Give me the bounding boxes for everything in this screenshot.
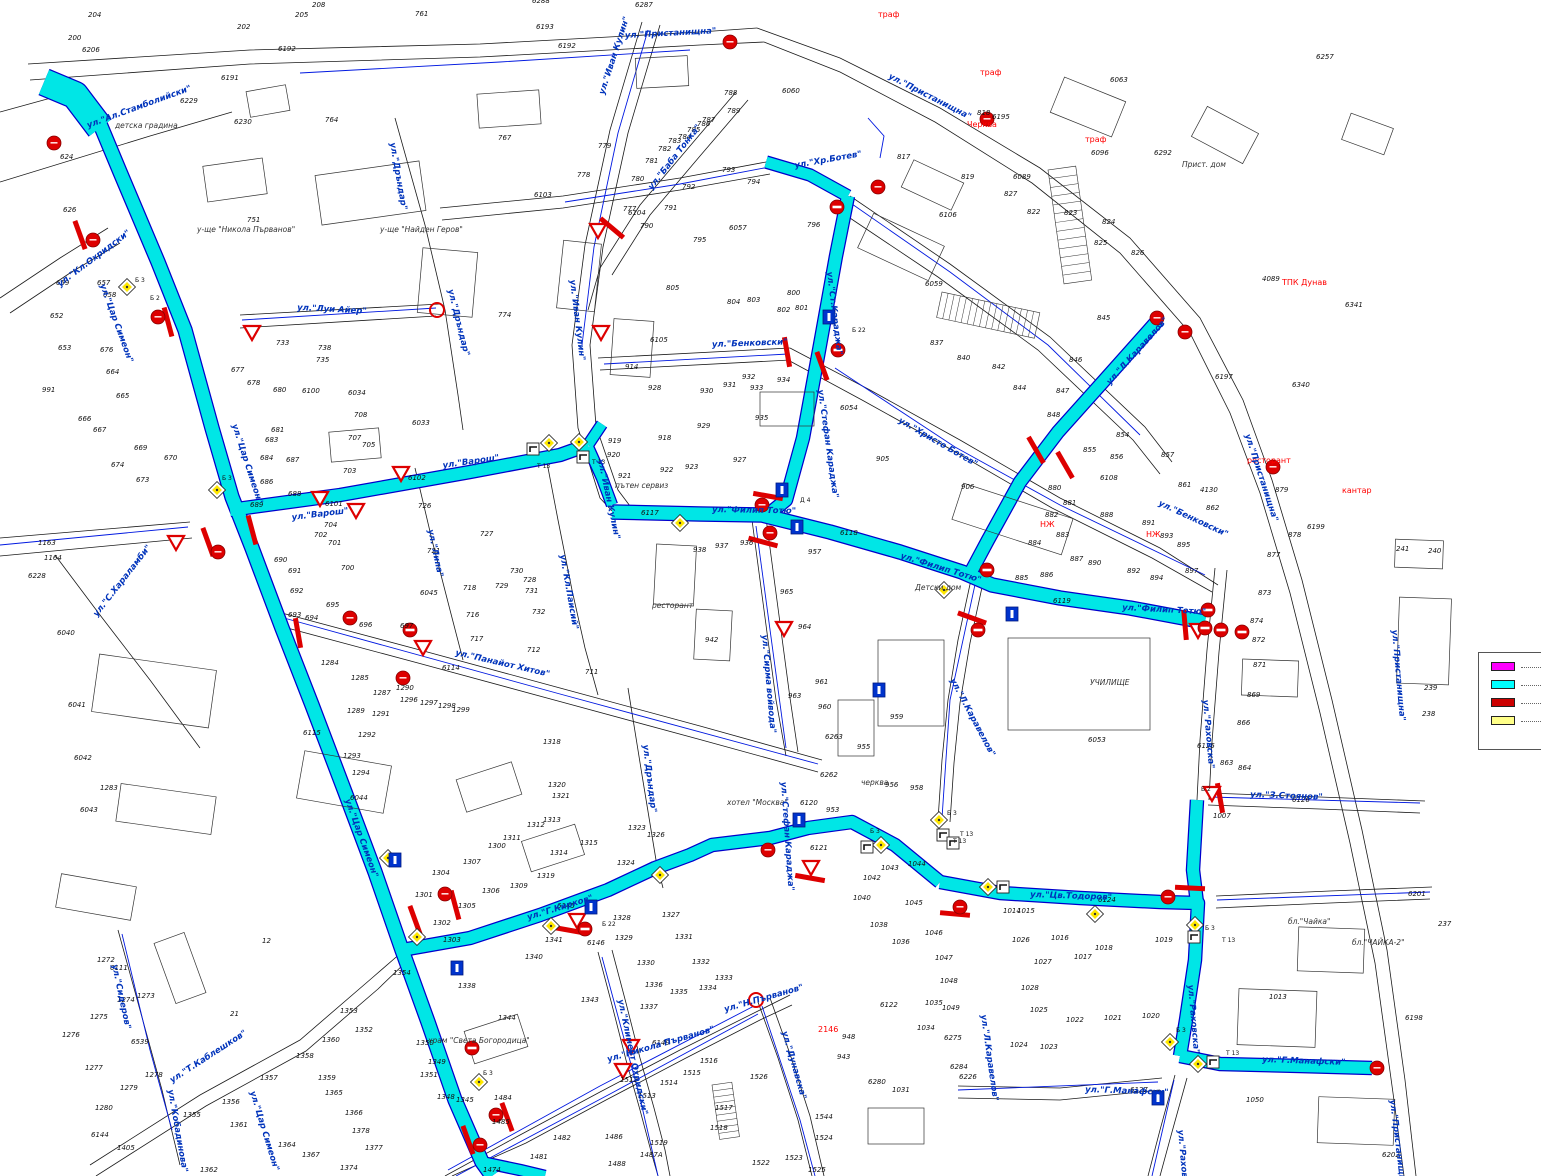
parcel-number-label: 673 xyxy=(136,476,149,484)
parcel-number-label: 1276 xyxy=(62,1031,80,1039)
parcel-number-label: 1283 xyxy=(100,784,118,792)
parcel-number-label: 239 xyxy=(1424,684,1438,692)
info-sign-glyph xyxy=(796,523,799,531)
parcel-number-label: 624 xyxy=(60,153,73,161)
parcel-number-label: 873 xyxy=(1258,589,1271,597)
parcel-number-label: 1023 xyxy=(1040,1043,1058,1051)
signpost-table-icon xyxy=(577,451,589,463)
priority-road-sign-dot xyxy=(126,286,128,288)
building-outline xyxy=(203,158,267,202)
building-outline xyxy=(653,544,696,606)
parcel-number-label: 844 xyxy=(1013,384,1026,392)
parcel-number-label: 1284 xyxy=(321,659,339,667)
stop-sign-text xyxy=(477,1144,484,1146)
poi-red-label: траф xyxy=(878,10,900,19)
parcel-number-label: 1336 xyxy=(645,981,663,989)
parcel-number-label: 697 xyxy=(400,622,414,630)
parcel-number-label: 895 xyxy=(1177,541,1191,549)
terraced-row-divider xyxy=(943,293,948,318)
building-outline xyxy=(1397,597,1452,685)
building-outline xyxy=(116,784,216,835)
parcel-number-label: 1290 xyxy=(396,684,414,692)
terraced-row-divider xyxy=(1022,310,1027,335)
sign-code-label: Т 13 xyxy=(1221,937,1235,944)
parcel-number-label: 871 xyxy=(1253,661,1266,669)
parcel-number-label: 793 xyxy=(722,166,735,174)
parcel-number-label: 1320 xyxy=(548,781,566,789)
parcel-number-label: 1367 xyxy=(302,1151,320,1159)
street-name-label: ул."Н.Първанов" xyxy=(723,983,805,1015)
parcel-number-label: 1356 xyxy=(222,1098,240,1106)
parcel-number-label: 6103 xyxy=(534,191,552,199)
parcel-number-label: 874 xyxy=(1250,617,1263,625)
building-outline xyxy=(92,654,217,728)
street-edge-line xyxy=(1208,805,1420,813)
parcel-number-label: 957 xyxy=(808,548,822,556)
parcel-number-label: 200 xyxy=(68,34,82,42)
terraced-row-divider xyxy=(1060,254,1088,258)
parcel-number-label: 1305 xyxy=(458,902,476,910)
parcel-number-label: 716 xyxy=(466,611,480,619)
parcel-number-label: 1365 xyxy=(325,1089,343,1097)
parcel-number-label: 1515 xyxy=(683,1069,701,1077)
control-point-circle-icon xyxy=(430,303,444,317)
stop-sign-text xyxy=(1270,466,1277,468)
parcel-number-label: 733 xyxy=(276,339,289,347)
terraced-row-divider xyxy=(961,297,966,322)
poi-label: ресторант xyxy=(651,601,694,610)
building-outline xyxy=(417,248,477,318)
legend-item xyxy=(1491,716,1541,725)
parcel-number-label: 1309 xyxy=(510,882,528,890)
sign-code-label: Т 13 xyxy=(536,463,550,470)
yield-sign-icon xyxy=(168,536,184,550)
parcel-number-label: 1487A xyxy=(640,1151,663,1159)
parcel-number-label: 948 xyxy=(842,1033,856,1041)
street-name-label: ул."Раховска" xyxy=(1175,1129,1191,1176)
parcel-number-label: 6228 xyxy=(28,572,46,580)
parcel-number-label: 712 xyxy=(527,646,541,654)
parcel-number-label: 930 xyxy=(700,387,714,395)
parcel-number-label: 1324 xyxy=(617,859,635,867)
parcel-number-label: 819 xyxy=(961,173,975,181)
parcel-number-label: 790 xyxy=(640,222,654,230)
no-entry-sign-bar xyxy=(974,629,983,632)
yield-sign-icon xyxy=(803,861,819,875)
parcel-number-label: 1351 xyxy=(420,1071,438,1079)
parcel-number-label: 6257 xyxy=(1316,53,1334,61)
parcel-number-label: 1296 xyxy=(400,696,418,704)
parcel-number-label: 1353 xyxy=(340,1007,358,1015)
street-name-label: ул."Дръндар" xyxy=(445,288,471,357)
poi-red-label: траф xyxy=(1085,135,1107,144)
parcel-number-label: 856 xyxy=(1110,453,1124,461)
terraced-row-divider xyxy=(955,296,960,321)
terraced-row-divider xyxy=(949,295,954,320)
parcel-number-label: 1024 xyxy=(1010,1041,1028,1049)
parcel-number-label: 1326 xyxy=(647,831,665,839)
poi-red-label: 2146 xyxy=(818,1025,838,1034)
parcel-number-label: 794 xyxy=(747,178,760,186)
poi-label: черква xyxy=(861,778,889,787)
parcel-number-label: 684 xyxy=(260,454,273,462)
parcel-number-label: 6089 xyxy=(1013,173,1031,181)
building-outline xyxy=(1342,113,1394,155)
building-outline xyxy=(694,609,733,661)
parcel-number-label: 1046 xyxy=(925,929,943,937)
parcel-number-label: 1518 xyxy=(710,1124,728,1132)
parcel-number-label: 703 xyxy=(343,467,356,475)
legend-swatch xyxy=(1491,680,1515,689)
parcel-number-label: 680 xyxy=(273,386,287,394)
no-entry-sign-bar xyxy=(1217,629,1226,632)
building-outline xyxy=(154,932,206,1003)
sign-code-label: Б 3 xyxy=(1205,925,1215,932)
parcel-number-label: 6288 xyxy=(532,0,550,5)
parcel-number-label: 6043 xyxy=(80,806,98,814)
legend-label xyxy=(1521,702,1541,704)
parcel-number-label: 6040 xyxy=(57,629,75,637)
parcel-number-label: 893 xyxy=(1160,532,1173,540)
legend-item xyxy=(1491,662,1541,671)
parcel-number-label: 795 xyxy=(693,236,707,244)
no-entry-sign-bar xyxy=(983,569,992,572)
stop-sign-text xyxy=(400,677,407,679)
parcel-number-label: 208 xyxy=(312,1,326,9)
parcel-number-label: 6191 xyxy=(221,74,239,82)
parcel-number-label: 888 xyxy=(1100,511,1114,519)
info-sign-glyph xyxy=(781,486,784,494)
parcel-number-label: 1333 xyxy=(715,974,733,982)
parcel-number-label: 891 xyxy=(1142,519,1155,527)
no-entry-sign-bar xyxy=(1238,631,1247,634)
parcel-number-label: 1327 xyxy=(662,911,680,919)
parcel-number-label: 932 xyxy=(742,373,756,381)
parcel-number-label: 804 xyxy=(727,298,740,306)
sign-code-label: Б 3 xyxy=(135,277,145,284)
parcel-number-label: 800 xyxy=(787,289,801,297)
parcel-number-label: 1354 xyxy=(393,969,411,977)
parcel-number-label: 1013 xyxy=(1269,993,1287,1001)
parcel-number-label: 701 xyxy=(328,539,341,547)
parcel-number-label: 704 xyxy=(324,521,337,529)
parcel-number-label: 964 xyxy=(798,623,811,631)
street-axis-line xyxy=(1217,892,1430,900)
building-outline xyxy=(246,85,290,118)
parcel-number-label: 847 xyxy=(1056,387,1070,395)
parcel-number-label: 702 xyxy=(314,531,328,539)
terraced-row-divider xyxy=(1057,227,1085,231)
terraced-row xyxy=(937,292,1040,338)
parcel-number-label: 767 xyxy=(498,134,512,142)
parcel-number-label: 1306 xyxy=(482,887,500,895)
parcel-number-label: 923 xyxy=(685,463,698,471)
parcel-number-label: 690 xyxy=(274,556,288,564)
street-name-label: ул."Хр.Ботев" xyxy=(794,149,863,171)
parcel-number-label: 1048 xyxy=(940,977,958,985)
stop-sign-text xyxy=(442,893,449,895)
parcel-number-label: 823 xyxy=(1064,209,1077,217)
parcel-number-label: 6042 xyxy=(74,754,92,762)
street-name-label: ул."Г.Кирков" xyxy=(526,893,594,923)
parcel-number-label: 692 xyxy=(290,587,304,595)
parcel-number-label: 4130 xyxy=(1200,486,1218,494)
signpost-table-icon xyxy=(1207,1056,1219,1068)
stop-sign-text xyxy=(765,849,772,851)
parcel-number-label: 1273 xyxy=(137,992,155,1000)
priority-road-sign-dot xyxy=(938,819,940,821)
parcel-number-label: 652 xyxy=(50,312,64,320)
parcel-number-label: 6206 xyxy=(82,46,100,54)
parcel-number-label: 919 xyxy=(608,437,622,445)
terraced-row-divider xyxy=(1058,236,1086,240)
parcel-number-label: 21 xyxy=(230,1010,239,1018)
info-sign-glyph xyxy=(798,816,801,824)
building-outline xyxy=(1191,106,1258,163)
parcel-number-label: 1044 xyxy=(908,860,926,868)
parcel-number-label: 1015 xyxy=(1017,907,1035,915)
street-edge-line xyxy=(545,452,598,695)
parcel-number-label: 822 xyxy=(1027,208,1041,216)
parcel-number-label: 845 xyxy=(1097,314,1111,322)
parcel-number-label: 886 xyxy=(1040,571,1054,579)
building-outline xyxy=(477,90,541,128)
parcel-number-label: 1345 xyxy=(456,1096,474,1104)
parcel-number-label: 872 xyxy=(1252,636,1266,644)
parcel-number-label: 906 xyxy=(961,483,975,491)
priority-road-sign-dot xyxy=(1194,924,1196,926)
parcel-number-label: 694 xyxy=(305,614,318,622)
parcel-number-label: 1036 xyxy=(892,938,910,946)
building-outline xyxy=(1297,927,1364,973)
parcel-number-label: 825 xyxy=(1094,239,1108,247)
parcel-number-label: 1038 xyxy=(870,921,888,929)
parcel-number-label: 1047 xyxy=(935,954,953,962)
parcel-number-label: 1517 xyxy=(715,1104,733,1112)
parcel-number-label: 667 xyxy=(93,426,107,434)
map-legend xyxy=(1478,652,1541,750)
street-name-label: ул."Раховска" xyxy=(1200,699,1216,769)
poi-red-label: кантар xyxy=(1342,486,1372,495)
priority-road-sign-dot xyxy=(550,925,552,927)
parcel-number-label: 6033 xyxy=(412,419,430,427)
parcel-number-label: 935 xyxy=(755,414,769,422)
parcel-number-label: 718 xyxy=(463,584,477,592)
parcel-number-label: 1474 xyxy=(483,1166,501,1174)
parcel-number-label: 676 xyxy=(100,346,114,354)
street-name-label: ул."Пристанищна" xyxy=(1387,1099,1408,1176)
street-edge-line xyxy=(1216,887,1432,896)
terraced-row-divider xyxy=(714,1094,734,1097)
parcel-number-label: 1301 xyxy=(415,891,433,899)
parcel-number-label: 238 xyxy=(1422,710,1436,718)
highlight-route xyxy=(588,424,602,445)
parcel-number-label: 1357 xyxy=(260,1074,278,1082)
parcel-number-label: 241 xyxy=(1396,545,1409,553)
parcel-number-label: 965 xyxy=(780,588,794,596)
building-outline xyxy=(1050,77,1125,137)
parcel-number-label: 674 xyxy=(111,461,124,469)
cadastral-map: 2002022042052086206619261926191619362887… xyxy=(0,0,1541,1176)
poi-red-label: НЖ xyxy=(1040,520,1055,529)
parcel-number-label: 942 xyxy=(705,636,719,644)
parcel-number-label: 1378 xyxy=(352,1127,370,1135)
parcel-number-label: 802 xyxy=(777,306,791,314)
parcel-number-label: 6287 xyxy=(635,1,653,9)
parcel-number-label: 1377 xyxy=(365,1144,383,1152)
parcel-number-label: 6115 xyxy=(303,729,321,737)
yield-sign-icon xyxy=(415,641,431,655)
sign-code-label: Б 3 xyxy=(222,475,232,482)
info-sign-glyph xyxy=(590,903,593,911)
parcel-number-label: 6275 xyxy=(944,1034,962,1042)
parcel-number-label: 894 xyxy=(1150,574,1163,582)
legend-swatch xyxy=(1491,716,1515,725)
parcel-number-label: 1349 xyxy=(428,1058,446,1066)
parcel-number-label: 1355 xyxy=(183,1111,201,1119)
parcel-number-label: 237 xyxy=(1438,920,1452,928)
parcel-number-label: 693 xyxy=(288,611,301,619)
highlight-route xyxy=(402,822,940,950)
parcel-number-label: 6120 xyxy=(800,799,818,807)
street-name-label: ул."Пристанищна" xyxy=(1389,629,1407,721)
parcel-number-label: 6121 xyxy=(810,844,828,852)
parcel-number-label: 1366 xyxy=(345,1109,363,1117)
parcel-number-label: 866 xyxy=(1237,719,1251,727)
parcel-number-label: 6034 xyxy=(348,389,366,397)
parcel-number-label: 1042 xyxy=(863,874,881,882)
building-outline xyxy=(521,824,584,872)
parcel-number-label: 1525 xyxy=(808,1166,826,1174)
street-name-label: ул."Иван Кулин" xyxy=(567,279,587,361)
parcel-number-label: 202 xyxy=(237,23,251,31)
street-name-label: ул."Пристанищна" xyxy=(887,72,973,122)
parcel-number-label: 1291 xyxy=(372,710,390,718)
parcel-number-label: 6230 xyxy=(234,118,252,126)
parcel-number-label: 1516 xyxy=(700,1057,718,1065)
priority-road-sign-dot xyxy=(416,936,418,938)
parcel-number-label: 1021 xyxy=(1104,1014,1122,1022)
terraced-row-divider xyxy=(716,1112,736,1115)
parcel-number-label: 929 xyxy=(697,422,711,430)
parcel-number-label: 1031 xyxy=(892,1086,910,1094)
parcel-number-label: 6122 xyxy=(880,1001,898,1009)
parcel-number-label: 735 xyxy=(316,356,330,364)
terraced-row-divider xyxy=(1063,271,1091,275)
parcel-number-label: 1280 xyxy=(95,1104,113,1112)
legend-label xyxy=(1521,666,1541,668)
info-sign-glyph xyxy=(456,964,459,972)
parcel-number-label: 764 xyxy=(325,116,338,124)
sign-code-label: Б 2 xyxy=(1201,786,1211,793)
parcel-number-label: 1358 xyxy=(296,1052,314,1060)
yield-sign-icon xyxy=(776,622,792,636)
parcel-number-label: 6108 xyxy=(1100,474,1118,482)
parcel-number-label: 934 xyxy=(777,376,790,384)
parcel-number-label: 1304 xyxy=(432,869,450,877)
parcel-number-label: 707 xyxy=(348,434,362,442)
yield-sign-icon xyxy=(244,326,260,340)
parcel-number-label: 961 xyxy=(815,678,828,686)
parcel-number-label: 1361 xyxy=(230,1121,248,1129)
street-axis-line xyxy=(300,50,690,73)
parcel-number-label: 855 xyxy=(1083,446,1097,454)
parcel-number-label: 6280 xyxy=(868,1078,886,1086)
parcel-number-label: 1329 xyxy=(615,934,633,942)
parcel-number-label: 881 xyxy=(1063,499,1076,507)
parcel-number-label: 920 xyxy=(607,451,621,459)
terraced-row-divider xyxy=(1049,175,1077,179)
street-name-label: ул."Т.Каблешков" xyxy=(168,1028,249,1086)
parcel-number-label: 817 xyxy=(897,153,911,161)
parcel-number-label: 1485 xyxy=(492,1118,510,1126)
legend-label xyxy=(1521,684,1541,686)
parcel-number-label: 824 xyxy=(1102,218,1115,226)
parcel-number-label: 933 xyxy=(750,384,763,392)
stop-sign-text xyxy=(493,1114,500,1116)
parcel-number-label: 1522 xyxy=(752,1159,770,1167)
parcel-number-label: 6144 xyxy=(91,1131,109,1139)
parcel-number-label: 882 xyxy=(1045,511,1059,519)
parcel-number-label: 914 xyxy=(625,363,638,371)
parcel-number-label: 963 xyxy=(788,692,801,700)
parcel-number-label: 1164 xyxy=(44,554,62,562)
parcel-number-label: 779 xyxy=(598,142,612,150)
parcel-number-label: 6100 xyxy=(302,387,320,395)
parcel-number-label: 1303 xyxy=(443,936,461,944)
parcel-number-label: 774 xyxy=(498,311,511,319)
parcel-number-label: 1519 xyxy=(650,1139,668,1147)
parcel-number-label: 1285 xyxy=(351,674,369,682)
parcel-number-label: 751 xyxy=(247,216,260,224)
stop-sign-text xyxy=(767,532,774,534)
parcel-number-label: 6059 xyxy=(925,280,943,288)
parcel-number-label: 696 xyxy=(359,621,373,629)
poi-label: бл."Чайка" xyxy=(1288,917,1330,926)
parcel-number-label: 12 xyxy=(262,937,271,945)
priority-road-sign-dot xyxy=(578,441,580,443)
street-name-label: ул."Христо Ботев" xyxy=(897,416,980,469)
parcel-number-label: 6192 xyxy=(558,42,576,50)
parcel-number-label: 818 xyxy=(977,109,991,117)
road-closure-bar-icon xyxy=(1055,451,1074,479)
street-edge-line xyxy=(240,316,436,328)
parcel-number-label: 1311 xyxy=(503,834,521,842)
terraced-row-divider xyxy=(713,1088,733,1091)
street-name-label: ул."Кл.Паисий" xyxy=(557,554,580,631)
city-map-canvas[interactable]: 2002022042052086206619261926191619362887… xyxy=(0,0,1541,1176)
parcel-number-label: 1018 xyxy=(1095,944,1113,952)
poi-label: бл."ЧАЙКА-2" xyxy=(1352,938,1405,947)
parcel-number-label: 1294 xyxy=(352,769,370,777)
legend-swatch xyxy=(1491,662,1515,671)
street-name-label: ул."Пристанищна" xyxy=(1242,433,1280,523)
parcel-number-label: 959 xyxy=(890,713,904,721)
parcel-number-label: 691 xyxy=(288,567,301,575)
parcel-number-label: 6539 xyxy=(131,1038,149,1046)
parcel-number-label: 669 xyxy=(134,444,148,452)
signpost-table-icon xyxy=(861,841,873,853)
sign-code-label: Д 4 xyxy=(800,497,811,504)
poi-label: у-ще "Никола Първанов" xyxy=(196,225,295,234)
stop-sign-text xyxy=(347,617,354,619)
stop-sign-text xyxy=(90,239,97,241)
priority-road-sign-dot xyxy=(987,886,989,888)
priority-road-sign-dot xyxy=(216,489,218,491)
parcel-number-label: 1323 xyxy=(628,824,646,832)
parcel-number-label: 695 xyxy=(326,601,340,609)
parcel-number-label: 883 xyxy=(1056,531,1069,539)
